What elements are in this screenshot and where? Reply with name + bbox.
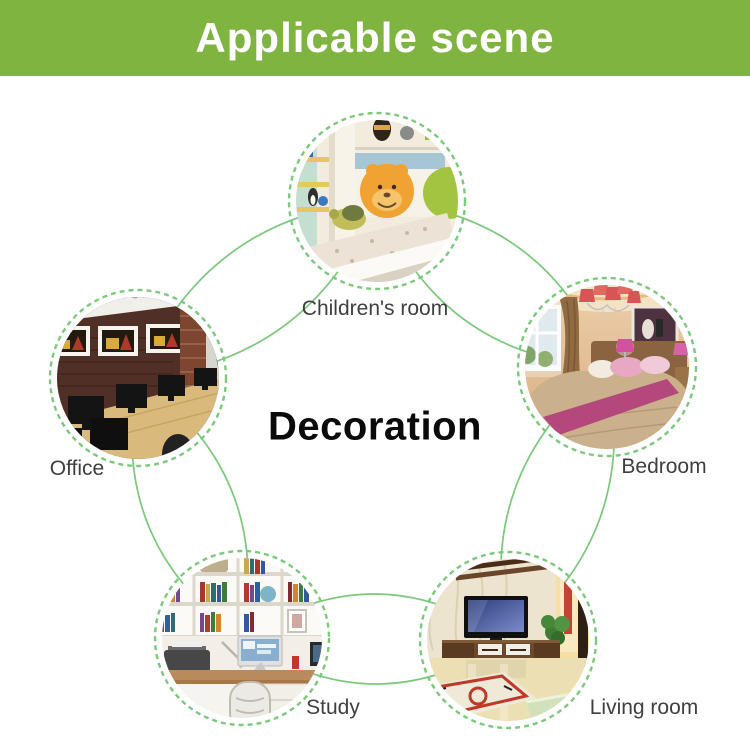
decoration-diagram: Decoration Children's room Bedroom Livin… (0, 76, 750, 750)
page: Applicable scene (0, 0, 750, 750)
bedroom-photo (472, 162, 742, 467)
label-children-room: Children's room (302, 297, 448, 321)
children-room-photo (277, 101, 477, 301)
page-title: Applicable scene (195, 14, 554, 62)
center-label: Decoration (268, 405, 482, 450)
label-bedroom: Bedroom (621, 455, 706, 479)
label-living-room: Living room (590, 696, 699, 720)
label-study: Study (306, 696, 360, 720)
label-office: Office (50, 457, 104, 481)
header-banner: Applicable scene (0, 0, 750, 76)
